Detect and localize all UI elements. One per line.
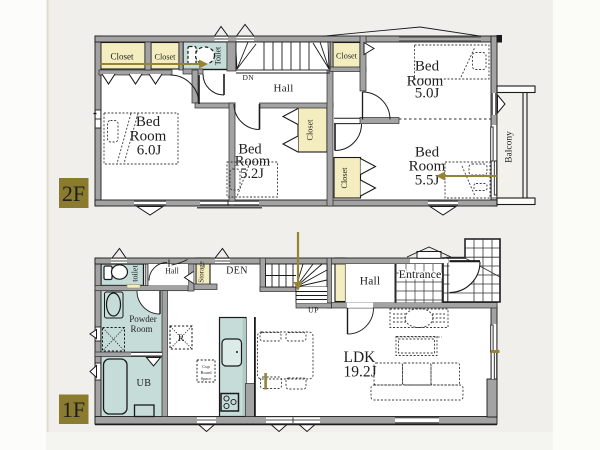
svg-text:toilet: toilet xyxy=(131,265,140,282)
svg-text:Closet: Closet xyxy=(110,52,134,62)
svg-text:Hall: Hall xyxy=(165,267,180,276)
svg-text:Hall: Hall xyxy=(274,83,294,95)
svg-text:6.0J: 6.0J xyxy=(137,143,162,159)
svg-text:5.5J: 5.5J xyxy=(415,173,440,189)
svg-text:Board: Board xyxy=(201,370,213,375)
svg-text:Hall: Hall xyxy=(360,276,381,288)
svg-text:Balcony: Balcony xyxy=(505,131,515,163)
svg-text:Powder: Powder xyxy=(129,314,157,324)
svg-text:Closet: Closet xyxy=(306,119,315,141)
svg-text:Bed: Bed xyxy=(415,59,440,75)
svg-text:5.0J: 5.0J xyxy=(415,86,440,102)
svg-text:19.2J: 19.2J xyxy=(344,364,377,381)
svg-text:5.2J: 5.2J xyxy=(240,166,264,182)
svg-text:UP: UP xyxy=(308,306,319,315)
svg-text:Room: Room xyxy=(130,324,152,334)
svg-text:Closet: Closet xyxy=(155,53,177,62)
svg-text:Closet: Closet xyxy=(336,52,358,61)
svg-text:Storage: Storage xyxy=(198,261,206,282)
svg-text:DEN: DEN xyxy=(226,266,248,277)
svg-text:DN: DN xyxy=(243,73,255,82)
svg-text:R: R xyxy=(178,333,184,343)
svg-text:UB: UB xyxy=(137,378,152,389)
svg-text:2F: 2F xyxy=(62,181,85,206)
svg-text:Cup: Cup xyxy=(202,364,210,369)
svg-text:Space: Space xyxy=(201,376,212,381)
svg-text:1F: 1F xyxy=(62,397,85,422)
svg-text:Entrance: Entrance xyxy=(399,267,442,281)
svg-text:Closet: Closet xyxy=(340,167,349,189)
